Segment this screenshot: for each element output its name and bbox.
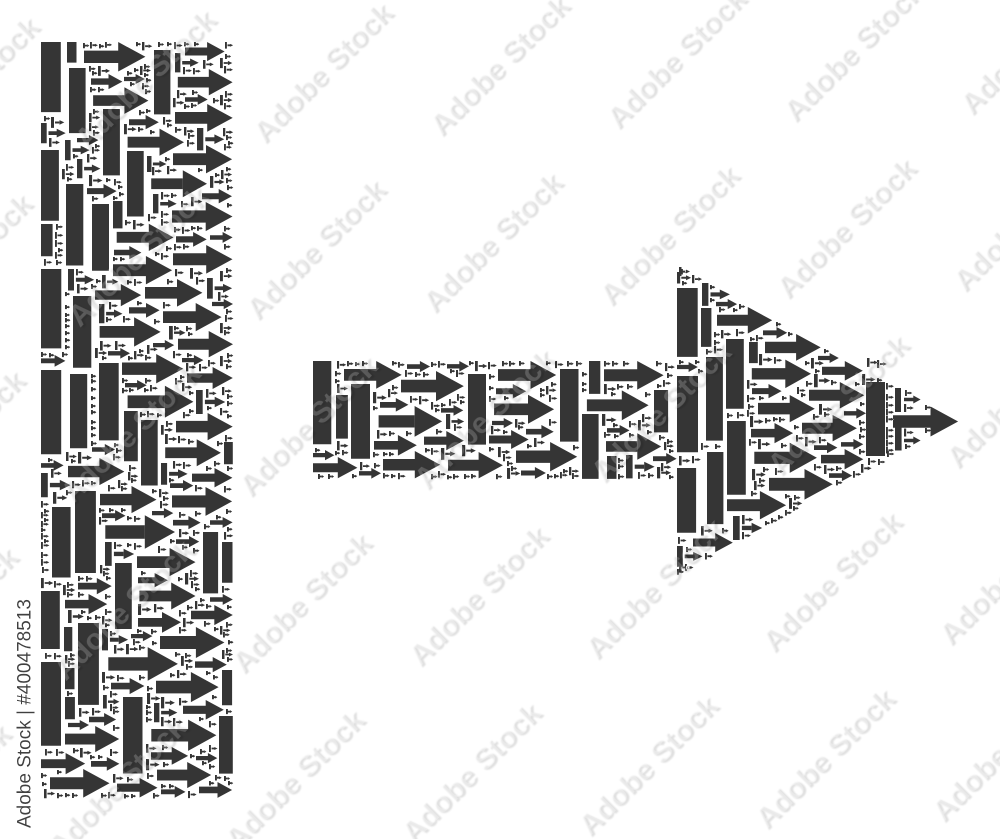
svg-text:Adobe Stock | #400478513: Adobe Stock | #400478513: [15, 599, 36, 828]
